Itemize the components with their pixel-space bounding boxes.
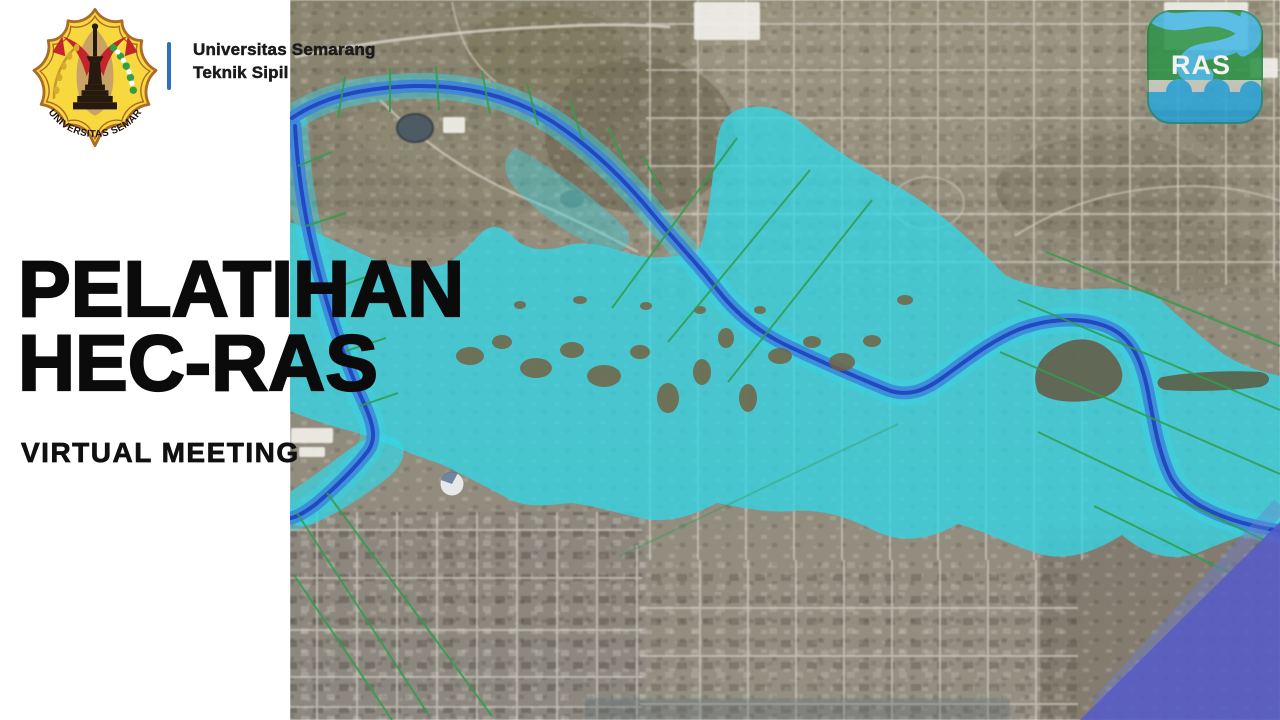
hec-ras-logo-icon: RAS bbox=[1147, 10, 1263, 124]
title-line-1: PELATIHAN bbox=[18, 252, 464, 326]
page-title: PELATIHAN HEC-RAS bbox=[18, 252, 464, 400]
university-name: Universitas Semarang bbox=[193, 38, 376, 61]
slide: UNIVERSITAS SEMARANG Universitas Semaran… bbox=[0, 0, 1280, 720]
ras-label: RAS bbox=[1171, 50, 1231, 80]
department-name: Teknik Sipil bbox=[193, 61, 376, 84]
subtitle: VIRTUAL MEETING bbox=[21, 437, 300, 469]
header-divider bbox=[167, 42, 171, 90]
title-line-2: HEC-RAS bbox=[18, 326, 464, 400]
org-header: Universitas Semarang Teknik Sipil bbox=[193, 38, 376, 84]
pond bbox=[397, 114, 433, 142]
university-logo-icon: UNIVERSITAS SEMARANG bbox=[24, 8, 166, 164]
